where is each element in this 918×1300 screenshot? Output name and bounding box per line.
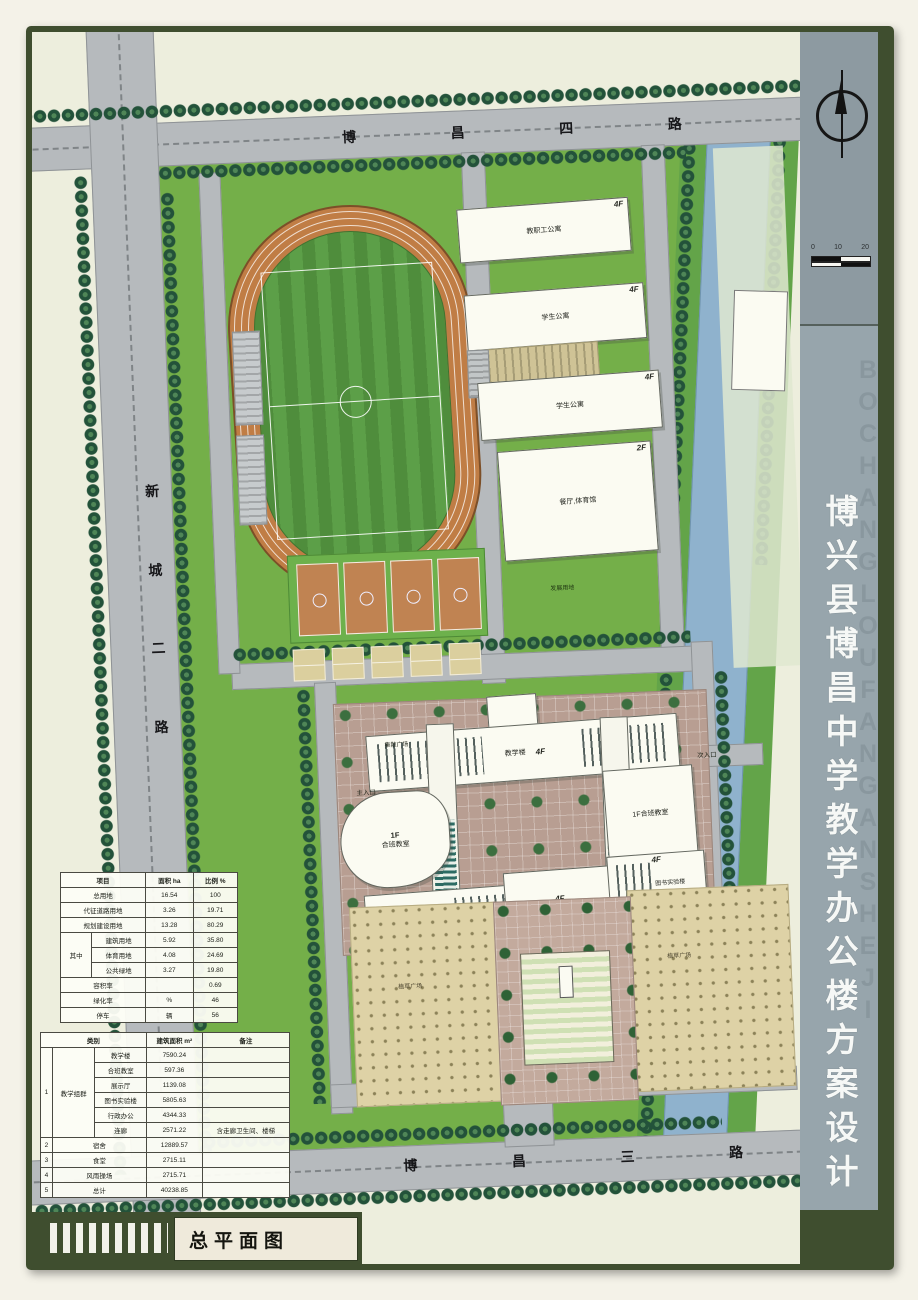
table-cell: 公共绿地 [92,963,146,978]
volleyball-court [371,645,404,678]
table-cell: 3.27 [146,963,194,978]
table-cell: 2715.11 [146,1153,202,1168]
bleachers-south [236,435,268,526]
basketball-courts [287,548,488,644]
table-cell: 建筑面积 m² [146,1033,202,1048]
bleachers-north [232,331,264,426]
building-label: 合班教室 [381,838,410,850]
table-cell: 类别 [41,1033,147,1048]
floor-label: 4F [644,372,654,382]
volleyball-court [410,644,443,677]
scale-tick: 10 [834,244,842,251]
table-cell: 连廊 [95,1123,146,1138]
scale-tick: 20 [861,244,869,251]
table-cell: 56 [193,1008,237,1023]
table-cell: 3.26 [146,903,194,918]
table-cell: 代征道路用地 [61,903,146,918]
table-cell: 597.36 [146,1063,202,1078]
building-label: 教学楼 [500,747,530,759]
table-cell: 容积率 [61,978,146,993]
project-title: 博兴县博昌中学教学办公楼方案设计 [815,494,863,1198]
road-char: 昌 [512,1151,527,1172]
road-char: 路 [729,1142,744,1163]
building-label: 教职工公寓 [526,224,562,237]
basketball-court [343,561,388,635]
planted-plaza-west [349,902,504,1108]
table-cell: 4.08 [146,948,194,963]
table-cell [202,1168,289,1183]
table-cell: 5 [41,1183,53,1198]
table-cell: 100 [193,888,237,903]
table-cell: 24.69 [193,948,237,963]
table-cell: 宿舍 [52,1138,146,1153]
table-cell: 3 [41,1153,53,1168]
table-cell: 其中 [61,933,92,978]
table-cell: 40238.85 [146,1183,202,1198]
scale-bar-ticks: 0 10 20 [811,244,869,251]
plaza-monument [559,966,574,999]
table-cell [202,1063,289,1078]
football-pitch-lines [260,262,448,540]
planted-plaza-west-label: 植草广场 [398,981,422,991]
table-cell: 1 [41,1048,53,1138]
table-cell: 总计 [52,1183,146,1198]
plan-paper: 教职工公寓 4F 学生公寓 4F 学生公寓 4F 餐厅,体育馆 2F 发展用地 [32,32,800,1264]
road-char: 新 [145,481,160,502]
table-cell: 5.92 [146,933,194,948]
compass-box: 0 10 20 [800,32,878,326]
building-area-table: 类别建筑面积 m²备注1教学组群教学楼7590.24合班教室597.36展示厅1… [40,1032,290,1198]
basketball-court [390,559,435,633]
floor-label: 4F [614,199,624,209]
table-cell: 19.80 [193,963,237,978]
building-dining-gym: 餐厅,体育馆 2F [497,440,659,561]
floor-label: 2F [636,443,646,453]
table-cell: 停车 [61,1008,146,1023]
table-cell: 比例 % [193,873,237,888]
table-cell: 教学组群 [52,1048,95,1138]
north-arrow-needle [835,80,847,114]
table-cell: 风雨操场 [52,1168,146,1183]
table-cell: 46 [193,993,237,1008]
table-cell [202,1048,289,1063]
table-cell [202,1138,289,1153]
drawing-title-block: 总平面图 [32,1212,362,1264]
road-char: 城 [148,559,163,580]
gathering-plaza-label: 集散广场 [384,739,408,749]
table-cell [202,1183,289,1198]
road-char: 三 [620,1146,635,1167]
table-cell: 项目 [61,873,146,888]
table-cell: 食堂 [52,1153,146,1168]
table-cell: 绿化率 [61,993,146,1008]
building-label: 1F合班教室 [632,807,669,820]
building-label: 图书实验楼 [653,875,688,887]
floor-label: 4F [651,855,661,865]
volleyball-court [332,647,365,680]
table-cell [202,1078,289,1093]
legend-bars [50,1223,168,1253]
table-cell: 教学楼 [95,1048,146,1063]
drawing-frame: 教职工公寓 4F 学生公寓 4F 学生公寓 4F 餐厅,体育馆 2F 发展用地 [26,26,894,1270]
table-cell: 13.28 [146,918,194,933]
table-cell: 面积 ha [146,873,194,888]
drawing-title-box: 总平面图 [174,1217,358,1261]
basketball-court [296,563,341,637]
building-label: 学生公寓 [556,399,585,411]
table-cell [146,978,194,993]
table-cell: 2715.71 [146,1168,202,1183]
table-cell: 建筑用地 [92,933,146,948]
volleyball-court [293,648,326,681]
table-cell [202,1153,289,1168]
scale-bar [811,262,871,267]
table-cell: 7590.24 [146,1048,202,1063]
table-cell: 35.80 [193,933,237,948]
basketball-court [437,557,482,631]
road-char: 昌 [450,122,465,143]
table-cell [202,1108,289,1123]
road-char: 四 [559,118,574,139]
scale-tick: 0 [811,244,815,251]
table-cell: 2571.22 [146,1123,202,1138]
project-title-bar: BOCHANGLOUFANGANSHEJI 博兴县博昌中学教学办公楼方案设计 [800,326,878,1210]
road-char: 博 [403,1155,418,1176]
volleyball-courts [290,638,487,686]
table-cell: 展示厅 [95,1078,146,1093]
main-entrance-label: 主入口 [356,786,376,797]
table-cell: 合班教室 [95,1063,146,1078]
volleyball-court [448,642,481,675]
table-cell: 16.54 [146,888,194,903]
table-cell: 规划建设用地 [61,918,146,933]
table-cell: 2 [41,1138,53,1153]
table-cell: 含走廊卫生间、楼梯 [202,1123,289,1138]
floor-label: 4F [535,746,545,756]
table-cell: 图书实验楼 [95,1093,146,1108]
land-use-table: 项目面积 ha比例 %总用地16.54100代征道路用地3.2619.71规划建… [60,872,238,1023]
planted-plaza-east [627,884,797,1092]
neighbor-building [731,290,788,392]
table-cell: 1139.08 [146,1078,202,1093]
table-cell: 12889.57 [146,1138,202,1153]
table-cell: 19.71 [193,903,237,918]
road-char: 二 [151,638,166,659]
table-cell: 4 [41,1168,53,1183]
building-label: 学生公寓 [541,311,570,323]
table-cell: 体育用地 [92,948,146,963]
table-cell: % [146,993,194,1008]
floor-label: 4F [629,284,639,294]
table-cell: 行政办公 [95,1108,146,1123]
table-cell: 辆 [146,1008,194,1023]
road-char: 路 [667,114,682,135]
table-cell: 80.29 [193,918,237,933]
building-east-classroom: 1F合班教室 [602,764,699,862]
table-cell: 总用地 [61,888,146,903]
table-cell: 备注 [202,1033,289,1048]
drawing-title: 总平面图 [175,1226,289,1253]
table-cell: 5805.63 [146,1093,202,1108]
road-char: 路 [154,717,169,738]
table-cell: 4344.33 [146,1108,202,1123]
table-cell [202,1093,289,1108]
central-south-plaza [493,896,639,1105]
secondary-entrance-label: 次入口 [697,749,717,760]
site-plan-sheet: 教职工公寓 4F 学生公寓 4F 学生公寓 4F 餐厅,体育馆 2F 发展用地 [0,0,918,1300]
development-land-label: 发展用地 [550,582,574,592]
planted-plaza-east-label: 植草广场 [667,950,691,960]
building-label: 餐厅,体育馆 [559,495,597,508]
table-cell: 0.69 [193,978,237,993]
road-char: 博 [342,127,357,148]
